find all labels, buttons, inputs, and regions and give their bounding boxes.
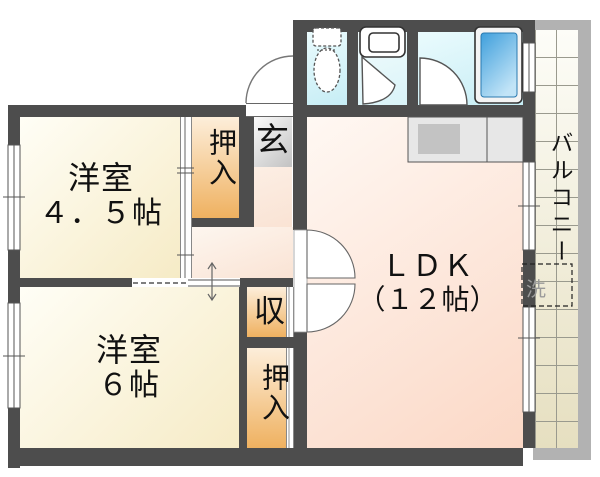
room-6-label: 洋室 ６帖: [29, 333, 229, 402]
balcony-label: バルコニー: [543, 131, 577, 266]
wall: [8, 105, 246, 117]
laundry-label: 洗: [526, 273, 546, 302]
room-toilet: [307, 32, 347, 105]
closet-lower-label: 押入: [254, 363, 294, 423]
wall: [239, 287, 247, 448]
wall: [293, 332, 307, 448]
room-washroom: [358, 32, 407, 105]
wall: [523, 20, 535, 43]
storage-label: 収: [247, 295, 293, 330]
wall: [8, 278, 132, 287]
entrance-door-arc: [246, 56, 293, 103]
wall: [240, 278, 293, 287]
wall: [239, 115, 254, 218]
room-name: 洋室: [20, 161, 182, 197]
sliding-door: [132, 278, 240, 287]
hallway-lower: [192, 227, 293, 278]
closet-upper-label: 押入: [201, 128, 241, 188]
floorplan-canvas: 洋室 ４．５帖 洋室 ６帖 ＬＤＫ （１２帖） 押入 玄 収 押入 バルコニー …: [0, 0, 600, 477]
room-name: 洋室: [29, 333, 229, 369]
room-name: ＬＤＫ: [330, 250, 525, 284]
wall: [8, 448, 523, 466]
room-bathroom: [418, 32, 523, 105]
wall: [293, 20, 307, 115]
room-ldk-label: ＬＤＫ （１２帖）: [330, 250, 525, 315]
wall: [293, 105, 535, 117]
room-size: （１２帖）: [330, 284, 525, 315]
room-4-5-label: 洋室 ４．５帖: [20, 161, 182, 230]
wall: [407, 20, 418, 117]
wall: [293, 115, 307, 230]
wall: [523, 92, 535, 162]
room-size: ４．５帖: [20, 197, 182, 231]
entrance-doorway: [246, 103, 293, 117]
entrance-label: 玄: [254, 122, 292, 159]
room-size: ６帖: [29, 369, 229, 403]
wall: [347, 20, 358, 117]
wall: [247, 337, 293, 348]
wall: [523, 412, 535, 448]
